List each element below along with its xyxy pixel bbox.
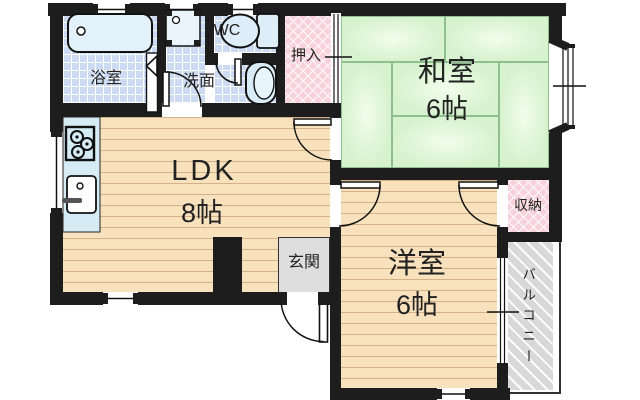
bathroom-label: 浴室 xyxy=(76,71,136,88)
washitsu-label: 和室 xyxy=(377,57,517,87)
youshitsu-door xyxy=(339,182,380,226)
kitchen-sink xyxy=(62,176,96,213)
window-icon xyxy=(50,132,63,213)
window-icon xyxy=(103,292,138,305)
washroom-label: 洗面 xyxy=(169,74,229,91)
bathtub xyxy=(68,14,152,52)
balcony-label: バルコニー xyxy=(520,250,534,386)
vanity-basin xyxy=(246,62,276,104)
bathroom-door-icon xyxy=(147,53,158,112)
youshitsu-size-label: 6帖 xyxy=(347,291,487,319)
oshiire-label: 押入 xyxy=(276,48,336,64)
wc-label: WC xyxy=(207,23,247,40)
ldk-label: LDK xyxy=(134,156,274,186)
washitsu-size-label: 6帖 xyxy=(377,95,517,123)
washer-pan xyxy=(166,10,200,46)
ldk-size-label: 8帖 xyxy=(132,199,272,227)
floorplan-canvas: 浴室 洗面 WC 押入 和室 6帖 LDK 8帖 玄関 洋室 6帖 収納 バルコ… xyxy=(0,0,640,400)
storage-door xyxy=(459,182,500,226)
storage-label: 収納 xyxy=(498,198,558,213)
washitsu-door xyxy=(294,119,332,160)
balcony-window-icon xyxy=(487,253,519,368)
bay-window-icon xyxy=(550,39,586,134)
stove xyxy=(66,127,94,160)
youshitsu-label: 洋室 xyxy=(347,249,487,279)
genkan-label: 玄関 xyxy=(274,255,334,272)
youshitsu-door-opening xyxy=(330,185,341,227)
entrance-door-opening xyxy=(281,292,324,305)
window-icon xyxy=(437,388,470,400)
